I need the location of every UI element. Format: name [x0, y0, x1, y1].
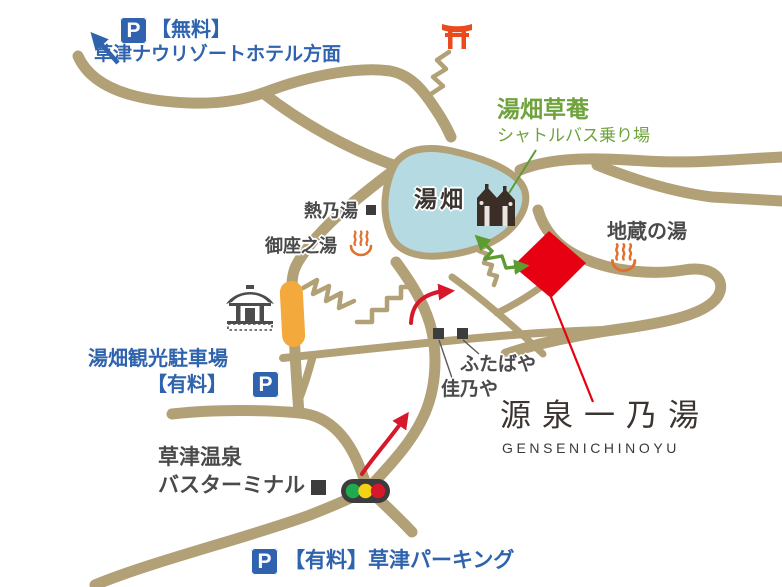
kanoya-square	[433, 328, 444, 339]
torii-icon	[442, 24, 472, 49]
futabaya-label: ふたばや	[460, 354, 536, 376]
footpath-stairs-left	[357, 287, 414, 322]
parking-area-bar	[279, 280, 305, 347]
footpath-torii	[431, 52, 449, 94]
kanoya-label: 佳乃や	[441, 379, 498, 401]
kanoya-leader-line	[439, 340, 452, 378]
souan-label: 湯畑草菴	[497, 96, 589, 122]
road	[520, 157, 782, 170]
road	[263, 93, 396, 166]
sightseeing-parking-fee-label: 【有料】	[147, 374, 227, 397]
gozanoyu-label: 御座之湯	[265, 236, 337, 257]
traffic-light-icon	[341, 479, 390, 503]
road	[263, 70, 451, 137]
access-map: P 【無料】 草津ナウリゾートホテル方面 湯畑草菴 シャトルバス乗り場 湯畑 熱…	[0, 0, 782, 587]
bus-terminal-label-line1: 草津温泉	[158, 446, 242, 470]
shuttle-bus-stop-label: シャトルバス乗り場	[497, 126, 650, 146]
netsunoyu-square	[366, 205, 376, 215]
bus-terminal-square	[311, 480, 326, 495]
temple-icon	[226, 285, 274, 330]
road-network	[78, 56, 782, 585]
free-parking-destination-label: 草津ナウリゾートホテル方面	[94, 44, 341, 66]
sightseeing-parking-label: 湯畑観光駐車場	[88, 348, 228, 371]
road	[597, 165, 782, 201]
parking-icon-kusatsu: P	[251, 548, 278, 575]
gozanoyu-onsen-icon	[351, 232, 371, 256]
parking-icon-free: P	[120, 17, 147, 44]
free-parking-fee-label: 【無料】	[151, 19, 231, 42]
footpath-center	[303, 280, 354, 308]
futabaya-square	[457, 328, 468, 339]
kusatsu-parking-label: 【有料】草津パーキング	[284, 549, 514, 573]
gensen-ichinoyu-logo: 源泉一乃湯	[500, 398, 710, 434]
netsunoyu-label: 熱乃湯	[304, 201, 358, 222]
destination-leader-line	[551, 297, 593, 402]
yubatake-label: 湯畑	[414, 186, 466, 212]
jizounoyu-label: 地蔵の湯	[607, 221, 687, 244]
parking-icon-paid: P	[252, 371, 279, 398]
gensen-ichinoyu-roman: GENSENICHINOYU	[502, 440, 680, 456]
bus-terminal-label-line2: バスターミナル	[158, 474, 305, 498]
road	[497, 287, 541, 313]
map-graphics	[0, 0, 782, 587]
